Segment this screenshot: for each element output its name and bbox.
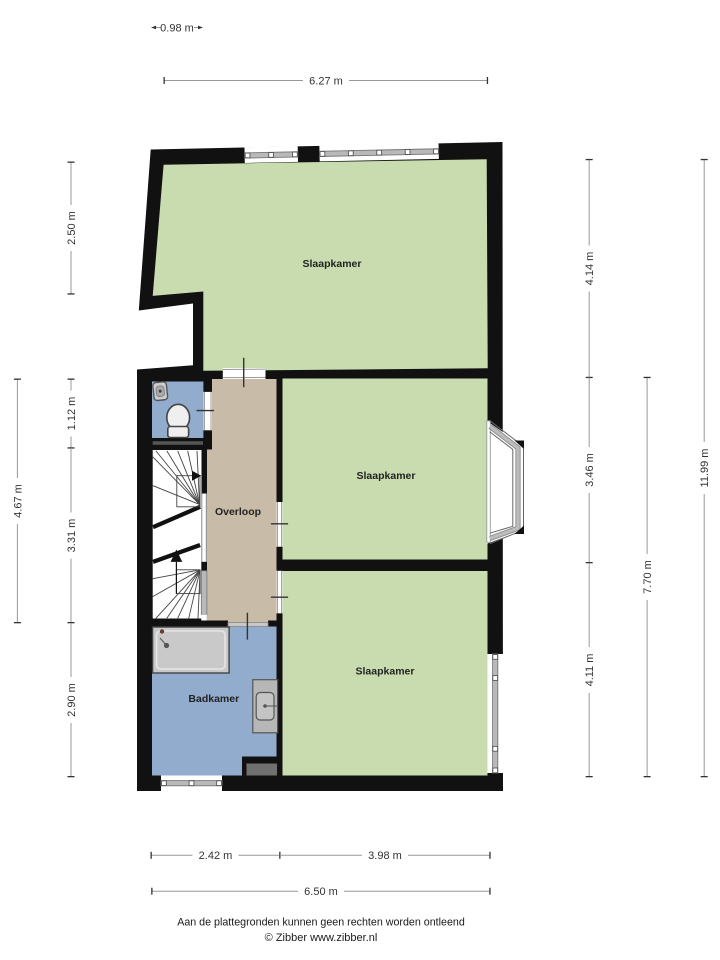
svg-text:3.46 m: 3.46 m (584, 453, 596, 487)
svg-text:6.50 m: 6.50 m (304, 886, 338, 898)
svg-text:Overloop: Overloop (215, 506, 261, 518)
svg-text:0.98 m: 0.98 m (160, 22, 194, 34)
svg-text:2.42 m: 2.42 m (199, 850, 233, 862)
svg-text:Aan de plattegronden kunnen ge: Aan de plattegronden kunnen geen rechten… (177, 916, 465, 928)
svg-text:© Zibber www.zibber.nl: © Zibber www.zibber.nl (265, 932, 378, 944)
svg-text:Slaapkamer: Slaapkamer (357, 470, 416, 482)
svg-text:Slaapkamer: Slaapkamer (356, 666, 415, 678)
svg-text:4.14 m: 4.14 m (584, 252, 596, 286)
svg-text:4.67 m: 4.67 m (12, 484, 24, 518)
svg-text:1.12 m: 1.12 m (66, 397, 78, 431)
svg-text:2.50 m: 2.50 m (66, 211, 78, 245)
svg-text:7.70 m: 7.70 m (642, 560, 654, 594)
svg-text:3.98 m: 3.98 m (368, 850, 402, 862)
svg-text:Slaapkamer: Slaapkamer (303, 258, 362, 270)
svg-text:3.31 m: 3.31 m (66, 519, 78, 553)
svg-text:6.27 m: 6.27 m (309, 75, 343, 87)
svg-text:4.11 m: 4.11 m (584, 654, 596, 687)
svg-text:2.90 m: 2.90 m (66, 683, 78, 717)
svg-text:Badkamer: Badkamer (188, 693, 239, 705)
svg-text:11.99 m: 11.99 m (699, 449, 711, 488)
